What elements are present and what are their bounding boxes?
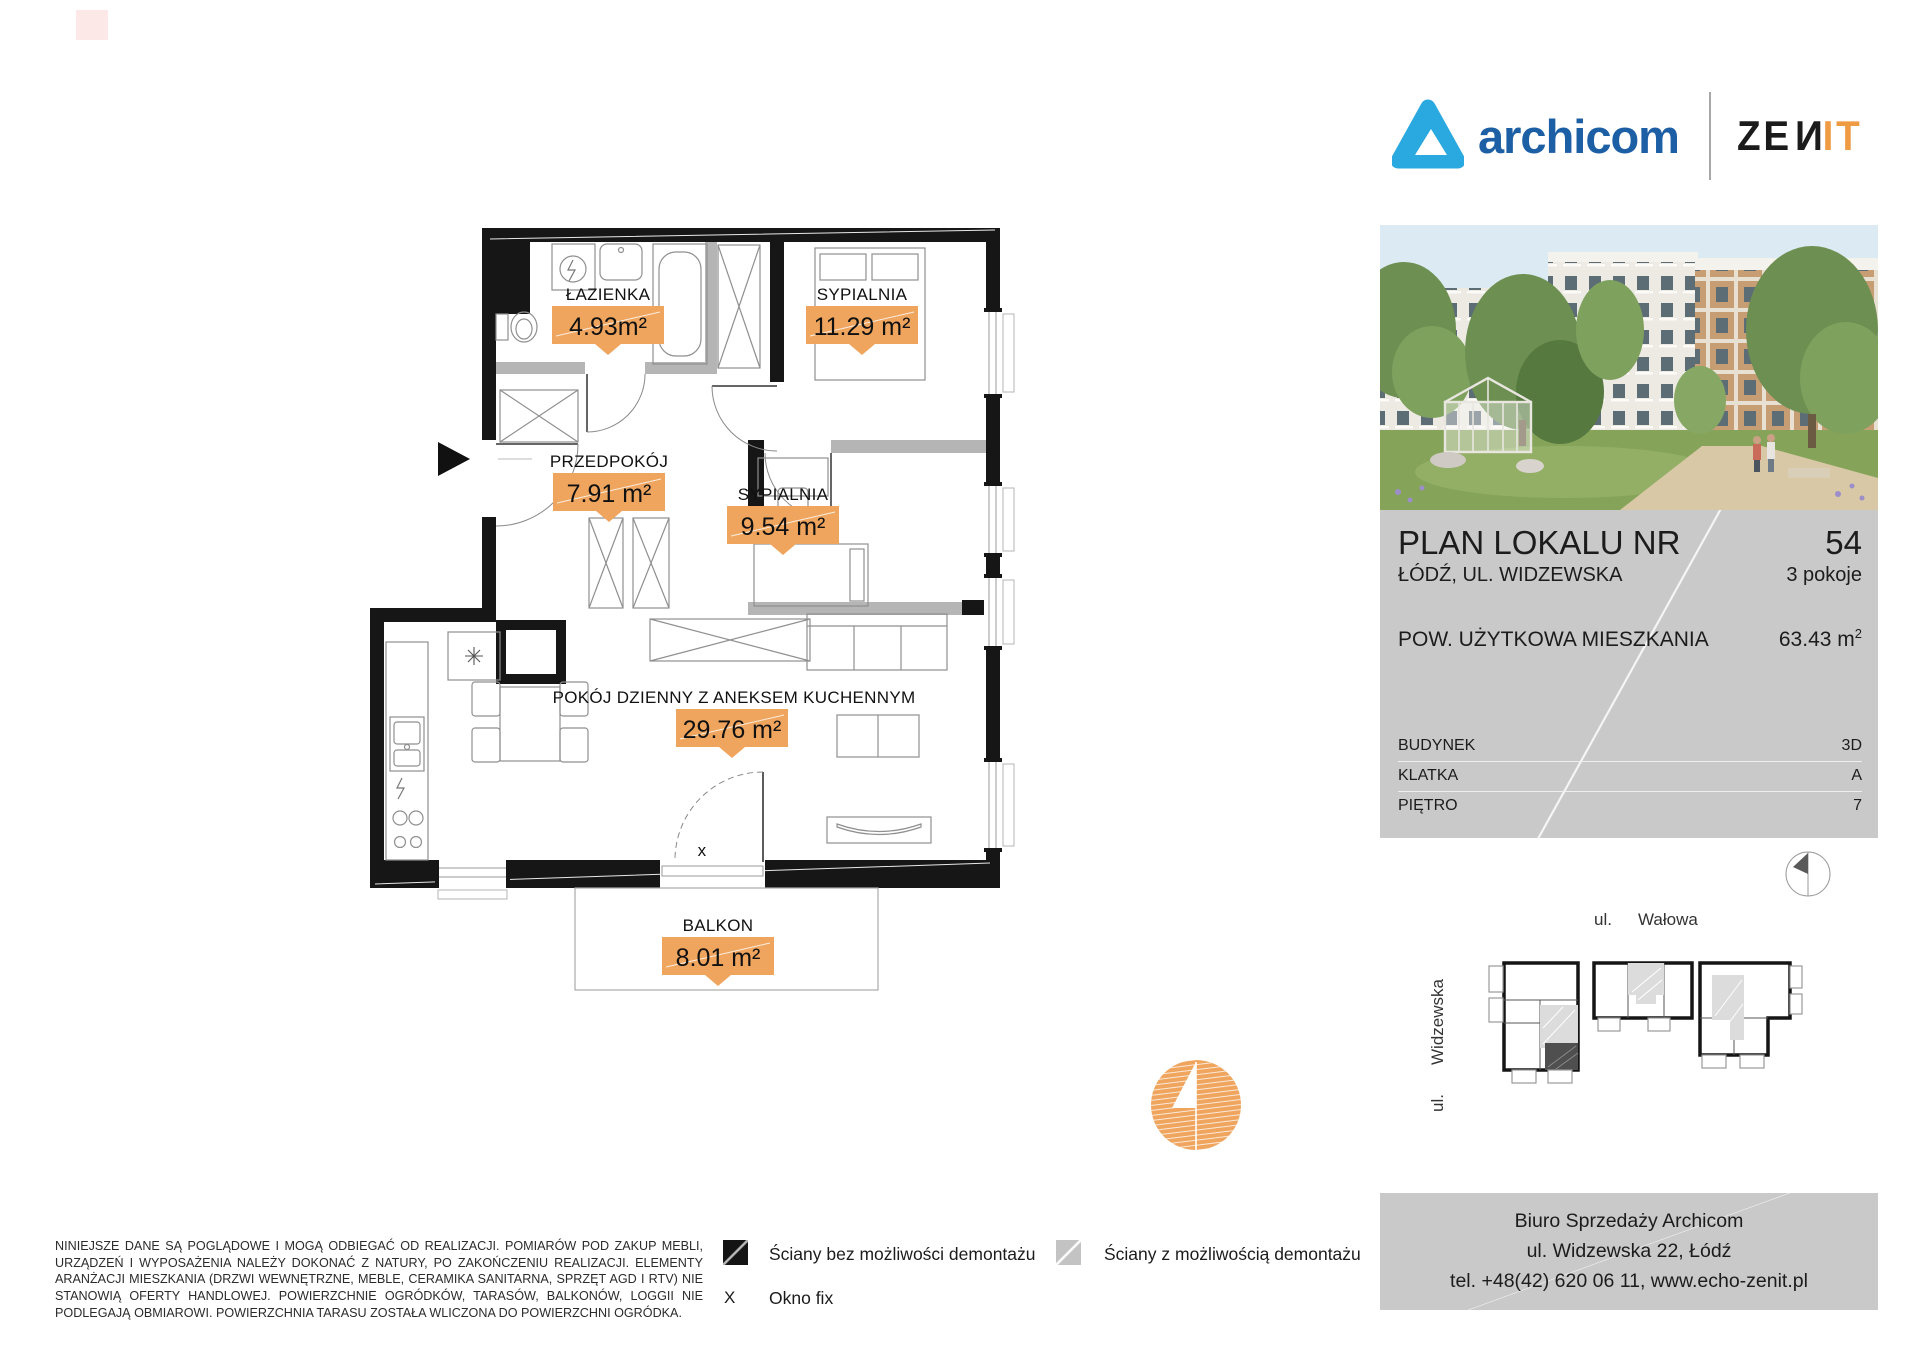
rooms-count: 3 pokoje — [1786, 564, 1862, 587]
contact-line: tel. +48(42) 620 06 11, www.echo-zenit.p… — [1450, 1270, 1808, 1293]
north-compass-orange-icon — [1151, 1060, 1241, 1150]
logo-divider — [1709, 92, 1711, 180]
header-logo: archicom ZENIT — [1392, 88, 1892, 184]
attr-value: 7 — [1853, 797, 1862, 815]
room-name: SYPIALNIA — [738, 485, 829, 504]
attr-label: BUDYNEK — [1398, 737, 1475, 755]
attr-row: PIĘTRO 7 — [1398, 792, 1862, 821]
street-top-prefix: ul. — [1594, 910, 1612, 929]
shaft — [506, 630, 556, 674]
room-name: POKÓJ DZIENNY Z ANEKSEM KUCHENNYM — [553, 688, 916, 707]
room-name: PRZEDPOKÓJ — [550, 452, 668, 471]
site-map: ul. Wałowa Widzewska ul. — [1428, 852, 1830, 1112]
room-name: ŁAZIENKA — [566, 285, 651, 304]
entrance-arrow-icon — [438, 442, 470, 476]
room-area: 8.01 m² — [676, 944, 761, 972]
room-name: BALKON — [683, 916, 754, 935]
floor-plan: x — [370, 228, 1014, 990]
unit-number: 54 — [1825, 524, 1862, 562]
archicom-wordmark: archicom — [1478, 109, 1679, 164]
contact-line: ul. Widzewska 22, Łódź — [1527, 1240, 1732, 1263]
street-left-prefix: ul. — [1428, 1094, 1447, 1112]
archicom-logo-icon — [1392, 97, 1464, 175]
disclaimer-text: NINIEJSZE DANE SĄ POGLĄDOWE I MOGĄ ODBIE… — [55, 1238, 703, 1322]
address: ŁÓDŹ, UL. WIDZEWSKA — [1398, 564, 1622, 587]
building-photo — [1352, 225, 1892, 510]
unit-info-panel: PLAN LOKALU NR 54 ŁÓDŹ, UL. WIDZEWSKA 3 … — [1380, 510, 1878, 838]
zenit-wordmark: ZENIT — [1737, 112, 1862, 160]
attr-value: A — [1851, 767, 1862, 785]
room-area: 11.29 m² — [814, 313, 911, 341]
area-value: 63.43 m2 — [1779, 626, 1862, 652]
room-area: 4.93m² — [569, 313, 647, 341]
attr-row: KLATKA A — [1398, 762, 1862, 792]
room-area: 7.91 m² — [567, 480, 652, 508]
street-top-name: Wałowa — [1638, 910, 1698, 929]
attr-label: PIĘTRO — [1398, 797, 1458, 815]
street-left-name: Widzewska — [1428, 978, 1447, 1065]
compass-icon — [1786, 852, 1830, 896]
fridge-icon — [465, 647, 483, 665]
room-area: 29.76 m² — [683, 716, 782, 744]
attr-row: BUDYNEK 3D — [1398, 732, 1862, 762]
print-artifact — [76, 10, 108, 40]
fixed-window-marker: x — [698, 841, 707, 860]
contact-line: Biuro Sprzedaży Archicom — [1515, 1210, 1744, 1233]
attr-value: 3D — [1842, 737, 1862, 755]
page: { "brand": { "name": "archicom", "zenit"… — [0, 0, 1920, 1358]
sales-office-box: Biuro Sprzedaży Archicom ul. Widzewska 2… — [1380, 1193, 1878, 1310]
panel-title: PLAN LOKALU NR — [1398, 524, 1680, 562]
attr-label: KLATKA — [1398, 767, 1458, 785]
area-label: POW. UŻYTKOWA MIESZKANIA — [1398, 628, 1709, 652]
unit-attributes: BUDYNEK 3D KLATKA A PIĘTRO 7 — [1398, 732, 1862, 821]
room-name: SYPIALNIA — [817, 285, 908, 304]
room-area: 9.54 m² — [741, 513, 826, 541]
